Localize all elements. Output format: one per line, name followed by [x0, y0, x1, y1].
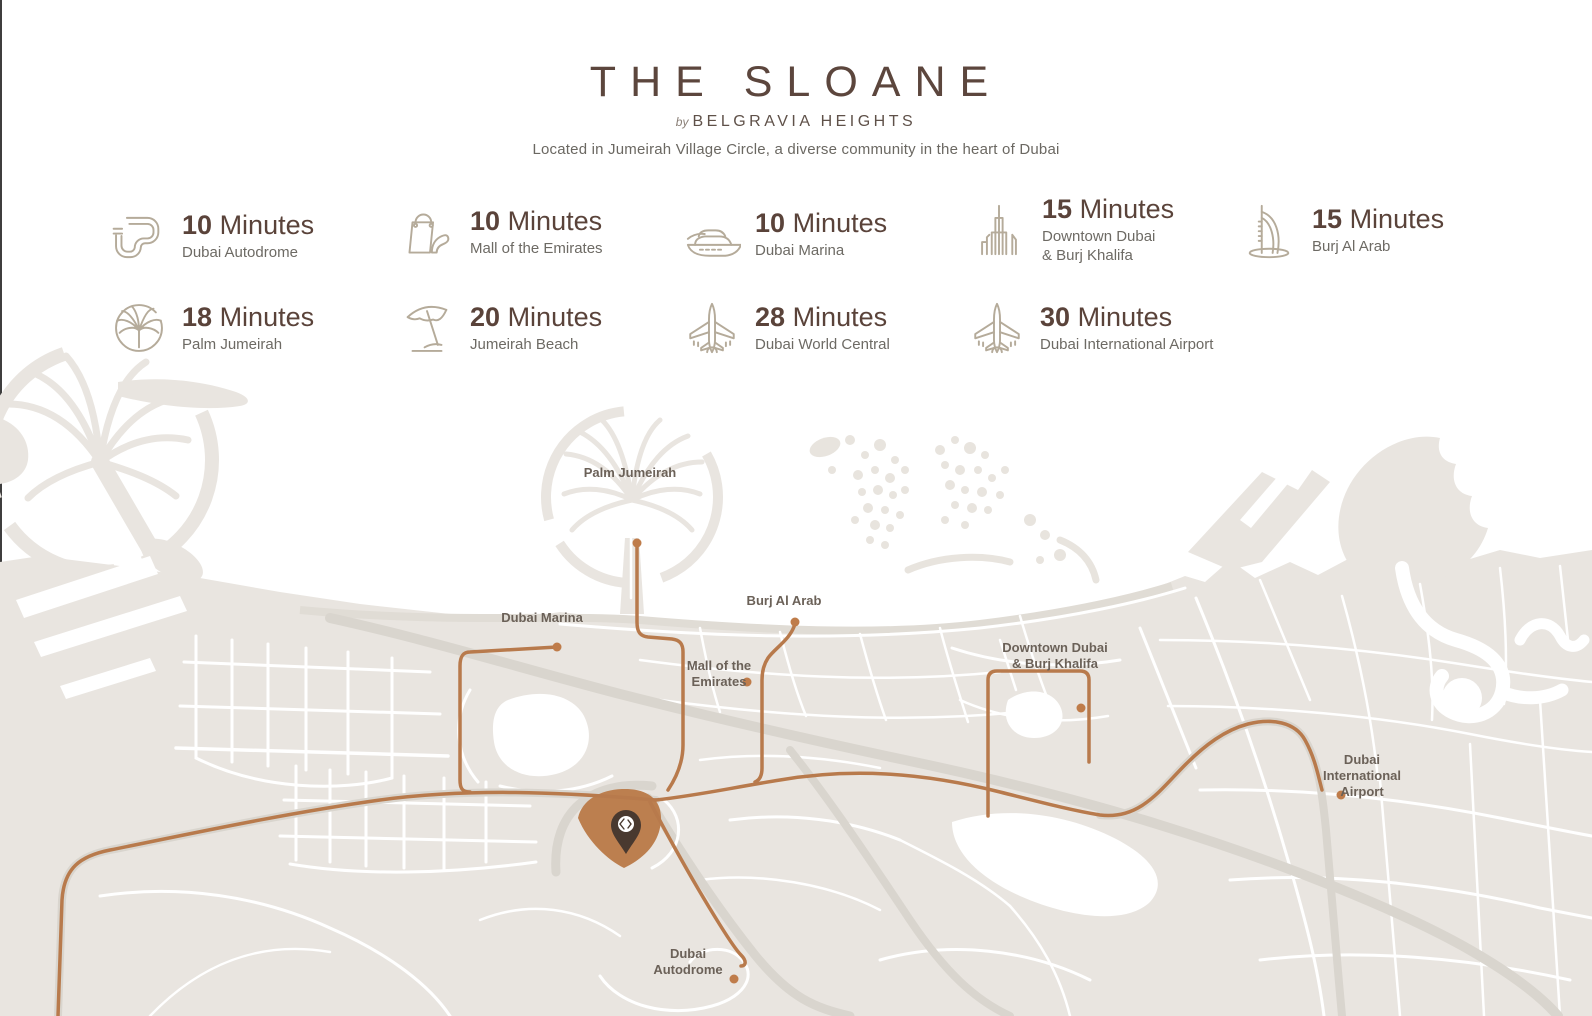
downtown-dot [1077, 704, 1086, 713]
yacht-icon [683, 205, 741, 263]
downtown-label: Downtown Dubai& Burj Khalifa [1002, 640, 1107, 672]
burj-al-arab-label: Burj Al Arab [747, 593, 822, 609]
skyline-icon [970, 201, 1028, 259]
shopping-icon [398, 203, 456, 261]
sloane-location-poster: Palm Jumeirah Dubai Marina Burj Al Arab … [0, 0, 1592, 1016]
autodrome-label: DubaiAutodrome [653, 946, 722, 978]
dubai-marina-label: Dubai Marina [501, 610, 583, 626]
palm-jumeirah-label: Palm Jumeirah [584, 465, 677, 481]
airport-label: DubaiInternationalAirport [1323, 752, 1401, 800]
stat-dubai-world-central: 28 Minutes Dubai World Central [683, 292, 890, 364]
stat-dubai-marina: 10 Minutes Dubai Marina [683, 198, 887, 270]
byline-prefix: by [676, 115, 689, 129]
stat-dubai-international-airport: 30 Minutes Dubai International Airport [968, 292, 1213, 364]
brand-name: BELGRAVIA HEIGHTS [692, 113, 916, 130]
beach-umbrella-icon [398, 299, 456, 357]
palm-jumeirah-dot [633, 539, 642, 548]
mall-of-the-emirates-label: Mall of theEmirates [687, 658, 751, 690]
world-islands [807, 433, 1096, 580]
page-title: THE SLOANE [0, 58, 1592, 107]
stat-jumeirah-beach: 20 Minutes Jumeirah Beach [398, 292, 602, 364]
stat-burj-al-arab: 15 Minutes Burj Al Arab [1240, 194, 1444, 266]
land-masses [0, 379, 1592, 1016]
palm-island-icon [110, 299, 168, 357]
subtitle: Located in Jumeirah Village Circle, a di… [0, 141, 1592, 158]
airplane-icon [968, 299, 1026, 357]
autodrome-dot [730, 975, 739, 984]
byline: byBELGRAVIA HEIGHTS [0, 113, 1592, 131]
stat-palm-jumeirah: 18 Minutes Palm Jumeirah [110, 292, 314, 364]
dubai-marina-dot [553, 643, 562, 652]
burj-al-arab-icon [1240, 201, 1298, 259]
stat-downtown-dubai: 15 Minutes Downtown Dubai& Burj Khalifa [970, 194, 1174, 266]
airplane-icon [683, 299, 741, 357]
stat-dubai-autodrome: 10 Minutes Dubai Autodrome [110, 200, 314, 272]
stat-mall-of-the-emirates: 10 Minutes Mall of the Emirates [398, 196, 603, 268]
burj-al-arab-dot [791, 618, 800, 627]
racetrack-icon [110, 207, 168, 265]
